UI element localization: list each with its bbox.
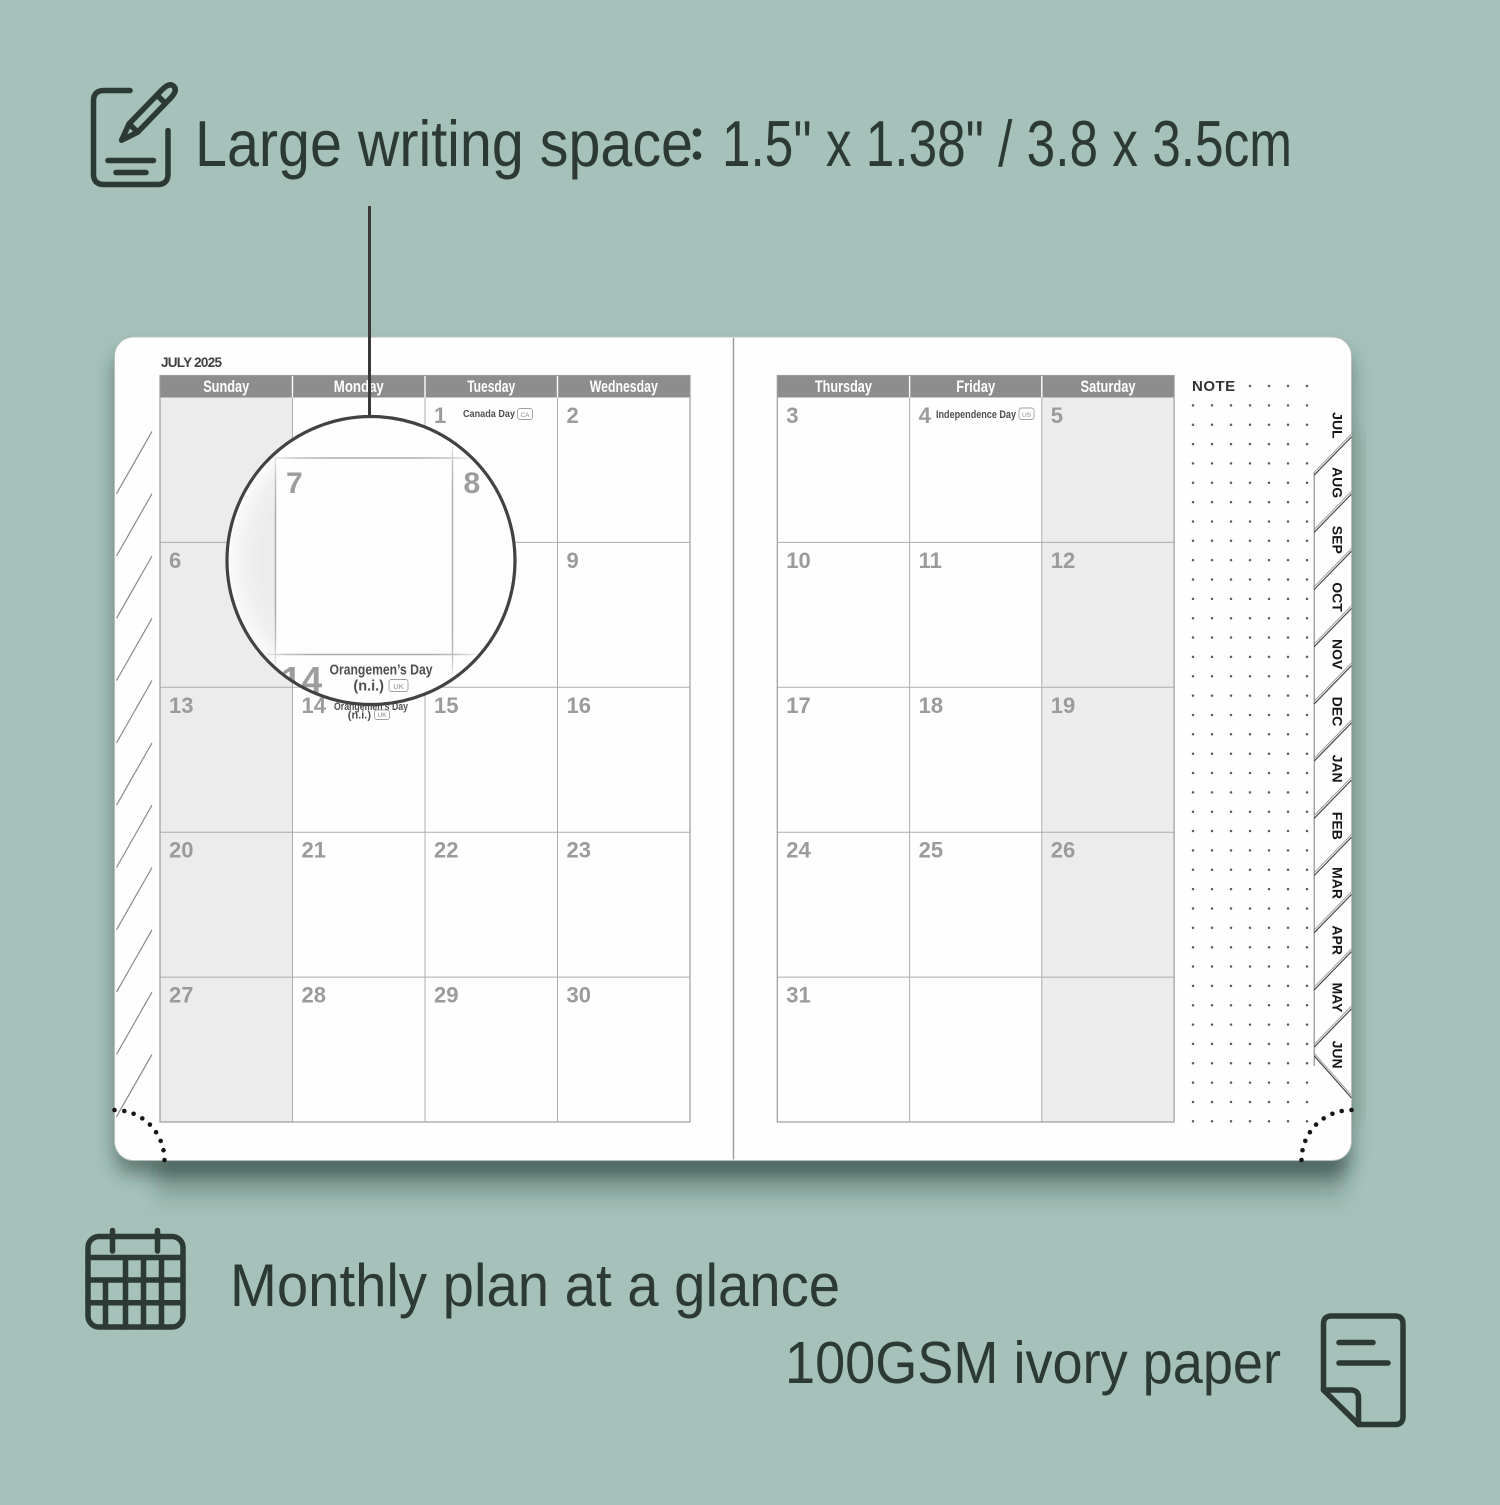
svg-text:100GSM ivory paper: 100GSM ivory paper [785,1330,1281,1396]
svg-text:CA: CA [520,412,530,419]
svg-text:7: 7 [286,467,303,500]
svg-text:2: 2 [567,403,579,428]
svg-text:5: 5 [1051,403,1063,428]
svg-text:Thursday: Thursday [815,378,873,396]
svg-text:JAN: JAN [1330,755,1346,783]
svg-text:AUG: AUG [1330,467,1346,498]
svg-text:1.5" x 1.38" / 3.8 x 3.5cm: 1.5" x 1.38" / 3.8 x 3.5cm [722,107,1292,180]
svg-text:21: 21 [302,838,326,863]
svg-text:20: 20 [169,838,193,863]
svg-text:Large writing space: Large writing space [195,107,693,180]
svg-text:UK: UK [377,712,387,719]
svg-text:28: 28 [302,983,326,1008]
svg-text:18: 18 [919,693,943,718]
svg-text:16: 16 [567,693,591,718]
svg-text:FEB: FEB [1330,812,1346,840]
svg-text:Canada Day: Canada Day [463,408,515,420]
svg-text:NOV: NOV [1330,639,1346,670]
svg-text:Monthly plan at a glance: Monthly plan at a glance [230,1252,840,1319]
svg-text:1: 1 [434,403,446,428]
svg-text:26: 26 [1051,838,1075,863]
svg-text:29: 29 [434,983,458,1008]
svg-text:SEP: SEP [1330,526,1346,554]
svg-text:13: 13 [169,693,193,718]
svg-text:Orangemen’s Day: Orangemen’s Day [330,663,433,679]
svg-text:27: 27 [169,983,193,1008]
svg-text:22: 22 [434,838,458,863]
svg-text:19: 19 [1051,693,1075,718]
svg-text:6: 6 [169,548,181,573]
svg-text:(n.i.): (n.i.) [353,679,384,695]
svg-text:30: 30 [567,983,591,1008]
svg-text:23: 23 [567,838,591,863]
svg-text:Independence Day: Independence Day [936,409,1017,421]
svg-text:US: US [1022,412,1032,419]
svg-text:4: 4 [919,403,932,428]
svg-text:Saturday: Saturday [1081,378,1137,396]
svg-text:3: 3 [786,403,798,428]
svg-text:17: 17 [786,693,810,718]
svg-text:NOTE: NOTE [1192,378,1236,395]
svg-text:31: 31 [786,983,810,1008]
svg-text:Tuesday: Tuesday [467,378,516,396]
svg-text:Friday: Friday [956,378,996,396]
svg-text:UK: UK [393,682,403,691]
svg-text:10: 10 [786,548,810,573]
svg-text:DEC: DEC [1330,697,1346,727]
svg-text:24: 24 [786,838,811,863]
svg-text:OCT: OCT [1330,582,1346,612]
svg-text:Sunday: Sunday [203,378,250,396]
svg-text:8: 8 [464,467,481,500]
svg-text:(n.i.): (n.i.) [348,710,372,722]
svg-text:11: 11 [919,548,942,573]
svg-text:Wednesday: Wednesday [590,378,659,396]
svg-text:APR: APR [1330,925,1346,955]
svg-text:25: 25 [919,838,943,863]
svg-text:9: 9 [567,548,579,573]
svg-text:JUN: JUN [1330,1041,1346,1069]
svg-text:JULY 2025: JULY 2025 [161,355,222,370]
svg-text:MAR: MAR [1330,867,1346,899]
svg-text:Monday: Monday [334,378,385,396]
svg-text:12: 12 [1051,548,1075,573]
svg-text:15: 15 [434,693,458,718]
svg-text:JUL: JUL [1330,412,1346,439]
svg-text:MAY: MAY [1330,982,1346,1012]
